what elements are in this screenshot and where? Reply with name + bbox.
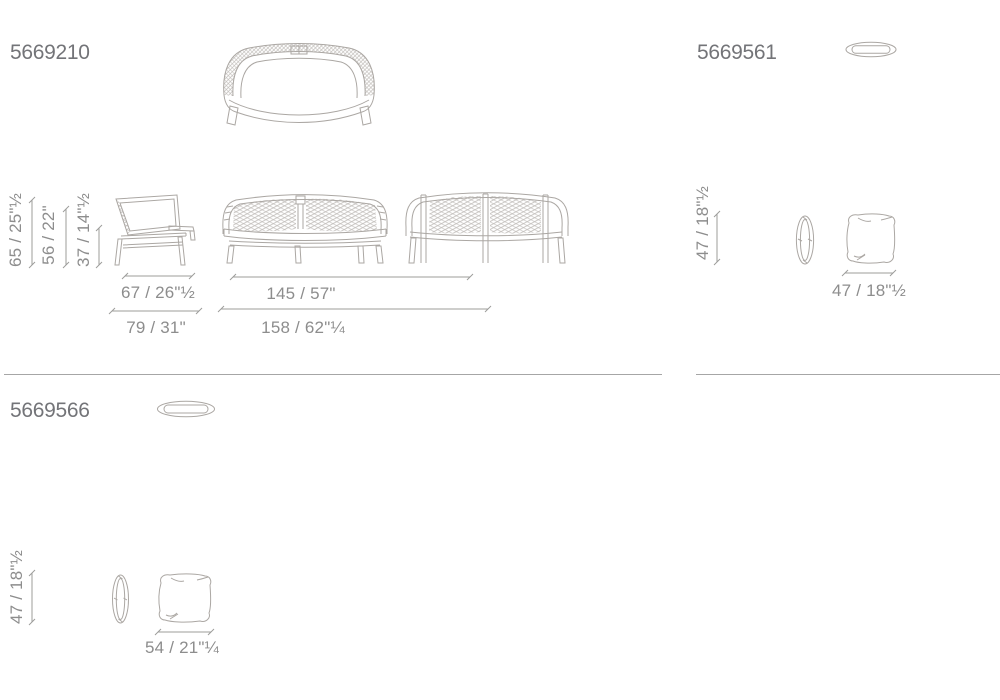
dim-label-sofa-height-back: 56 / 22" <box>39 205 59 265</box>
sofa-front-view-drawing <box>219 184 391 266</box>
spec-sheet: 5669210 5669561 5669566 <box>0 0 1000 700</box>
dim-label-sofa-depth-seat: 67 / 26"½ <box>121 283 195 303</box>
pouf-small-top-view-drawing <box>845 41 897 58</box>
sofa-side-view-drawing <box>106 184 198 269</box>
sofa-top-view-drawing <box>219 40 379 128</box>
dim-label-pouf-large-width: 54 / 21"¼ <box>145 638 219 658</box>
dim-line-pouf-large-height <box>29 570 35 625</box>
dim-label-sofa-height-seat: 37 / 14"½ <box>74 193 94 267</box>
dimension-lines-overlay <box>0 0 1000 700</box>
dim-label-sofa-width-seat: 145 / 57" <box>266 284 335 304</box>
dim-line-pouf-small-height <box>714 211 720 265</box>
dim-label-sofa-width-total: 158 / 62"¼ <box>261 318 345 338</box>
dim-line-sofa-height-back <box>63 206 69 268</box>
pouf-large-front-view-drawing <box>155 572 213 624</box>
dim-line-sofa-depth-total <box>109 308 202 314</box>
pouf-small-side-profile-drawing <box>795 215 815 265</box>
dim-line-pouf-large-width <box>155 629 214 635</box>
pouf-small-front-view-drawing <box>843 212 897 265</box>
product-code-pouf-large: 5669566 <box>10 399 90 423</box>
dim-label-sofa-depth-total: 79 / 31" <box>126 318 186 338</box>
dim-line-sofa-height-seat <box>96 225 102 268</box>
dim-label-pouf-small-width: 47 / 18"½ <box>832 281 906 301</box>
sofa-back-view-drawing <box>402 184 572 266</box>
pouf-large-top-view-drawing <box>156 400 216 418</box>
dim-label-pouf-small-height: 47 / 18"½ <box>693 186 713 260</box>
dim-line-sofa-width-seat <box>230 274 473 280</box>
product-code-pouf-small: 5669561 <box>697 41 777 65</box>
pouf-large-side-profile-drawing <box>111 574 130 624</box>
dim-line-sofa-depth-seat <box>122 273 195 279</box>
product-code-sofa: 5669210 <box>10 41 90 65</box>
dim-line-sofa-width-total <box>218 306 491 312</box>
dim-label-pouf-large-height: 47 / 18"½ <box>7 550 27 624</box>
dim-line-sofa-height-total <box>29 197 35 268</box>
dim-line-pouf-small-width <box>842 270 896 276</box>
dim-label-sofa-height-total: 65 / 25"½ <box>6 193 26 267</box>
